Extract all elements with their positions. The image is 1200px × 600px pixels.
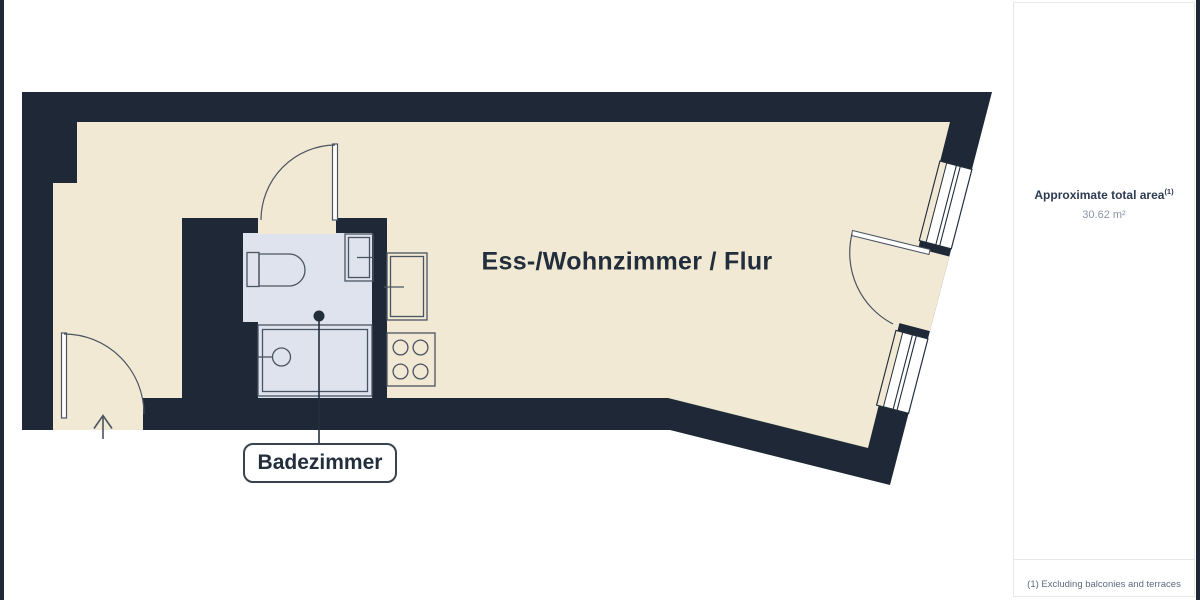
bathroom-door-opening [258,218,336,234]
floorplan-drawing [0,0,1010,600]
total-area-value: 30.62 m² [1014,209,1194,221]
total-area-title: Approximate total area(1) [1014,187,1194,202]
total-area-footnote-marker: (1) [1164,187,1173,196]
room-label-bathroom-box: Badezimmer [243,443,397,483]
right-edge-strip [1196,0,1200,600]
floorplan-canvas[interactable]: Ess-/Wohnzimmer / Flur Badezimmer [0,0,1010,600]
floorplan-page: Ess-/Wohnzimmer / Flur Badezimmer Approx… [0,0,1200,600]
total-area-title-text: Approximate total area [1034,188,1164,202]
room-label-living-dining: Ess-/Wohnzimmer / Flur [482,248,773,277]
sidebar-footnote-section: (1) Excluding balconies and terraces [1014,559,1194,596]
room-label-bathroom: Badezimmer [258,451,383,475]
footnote-text: (1) Excluding balconies and terraces [1014,579,1194,590]
info-sidebar: Approximate total area(1) 30.62 m² (1) E… [1013,2,1195,597]
